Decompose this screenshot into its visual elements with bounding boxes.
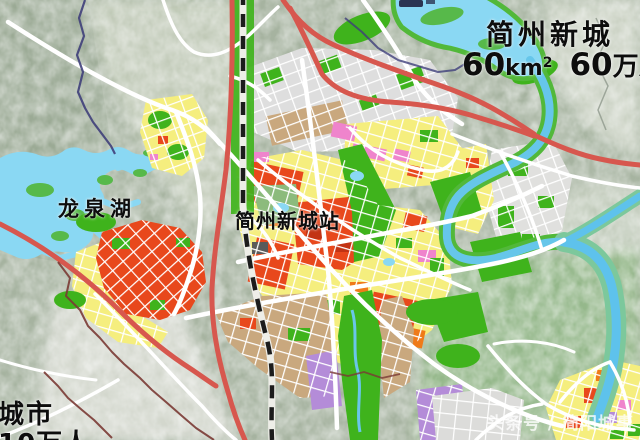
- region-stats: 60km260万人: [462, 46, 640, 83]
- lake-label: 龙泉湖: [58, 193, 136, 223]
- corner-population-label: 10万人: [0, 423, 90, 440]
- planning-map: 简州新城 60km260万人 龙泉湖 简州新城站 城市 10万人 头条号 / 简…: [0, 0, 640, 440]
- station-label: 简州新城站: [235, 205, 340, 234]
- area-unit: km: [505, 56, 543, 81]
- watermark: 头条号 / 简阳城事: [487, 409, 634, 434]
- population-value: 60: [569, 47, 612, 83]
- area-exponent: 2: [543, 55, 553, 71]
- population-unit: 万人: [613, 52, 640, 82]
- area-value: 60: [462, 47, 505, 83]
